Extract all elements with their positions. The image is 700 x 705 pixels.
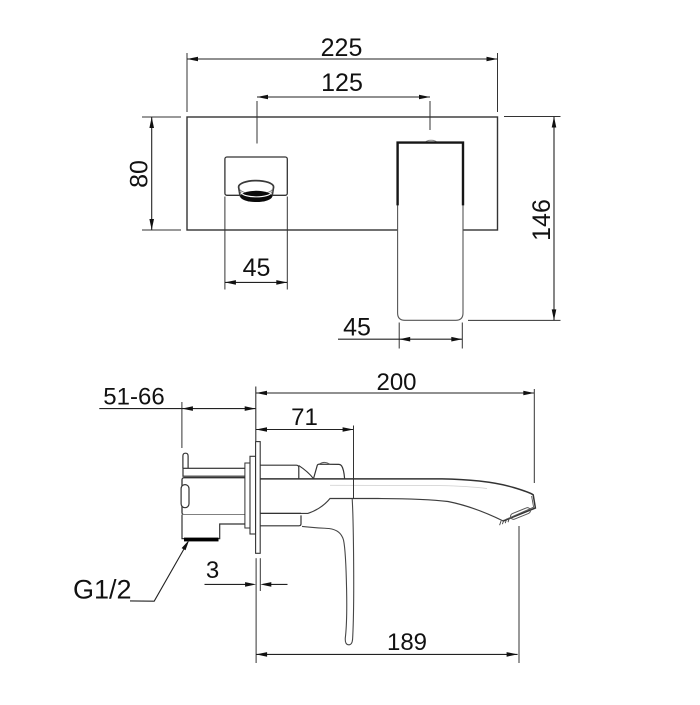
- svg-text:225: 225: [321, 34, 363, 62]
- svg-text:G1/2: G1/2: [73, 575, 132, 605]
- svg-text:45: 45: [243, 254, 271, 282]
- svg-text:146: 146: [528, 199, 556, 241]
- svg-text:189: 189: [387, 629, 427, 656]
- svg-text:71: 71: [291, 404, 318, 431]
- svg-text:3: 3: [206, 557, 219, 584]
- svg-text:45: 45: [343, 313, 371, 341]
- svg-text:80: 80: [126, 160, 154, 188]
- svg-text:200: 200: [376, 369, 416, 396]
- svg-text:51-66: 51-66: [103, 384, 164, 411]
- svg-text:125: 125: [321, 69, 363, 97]
